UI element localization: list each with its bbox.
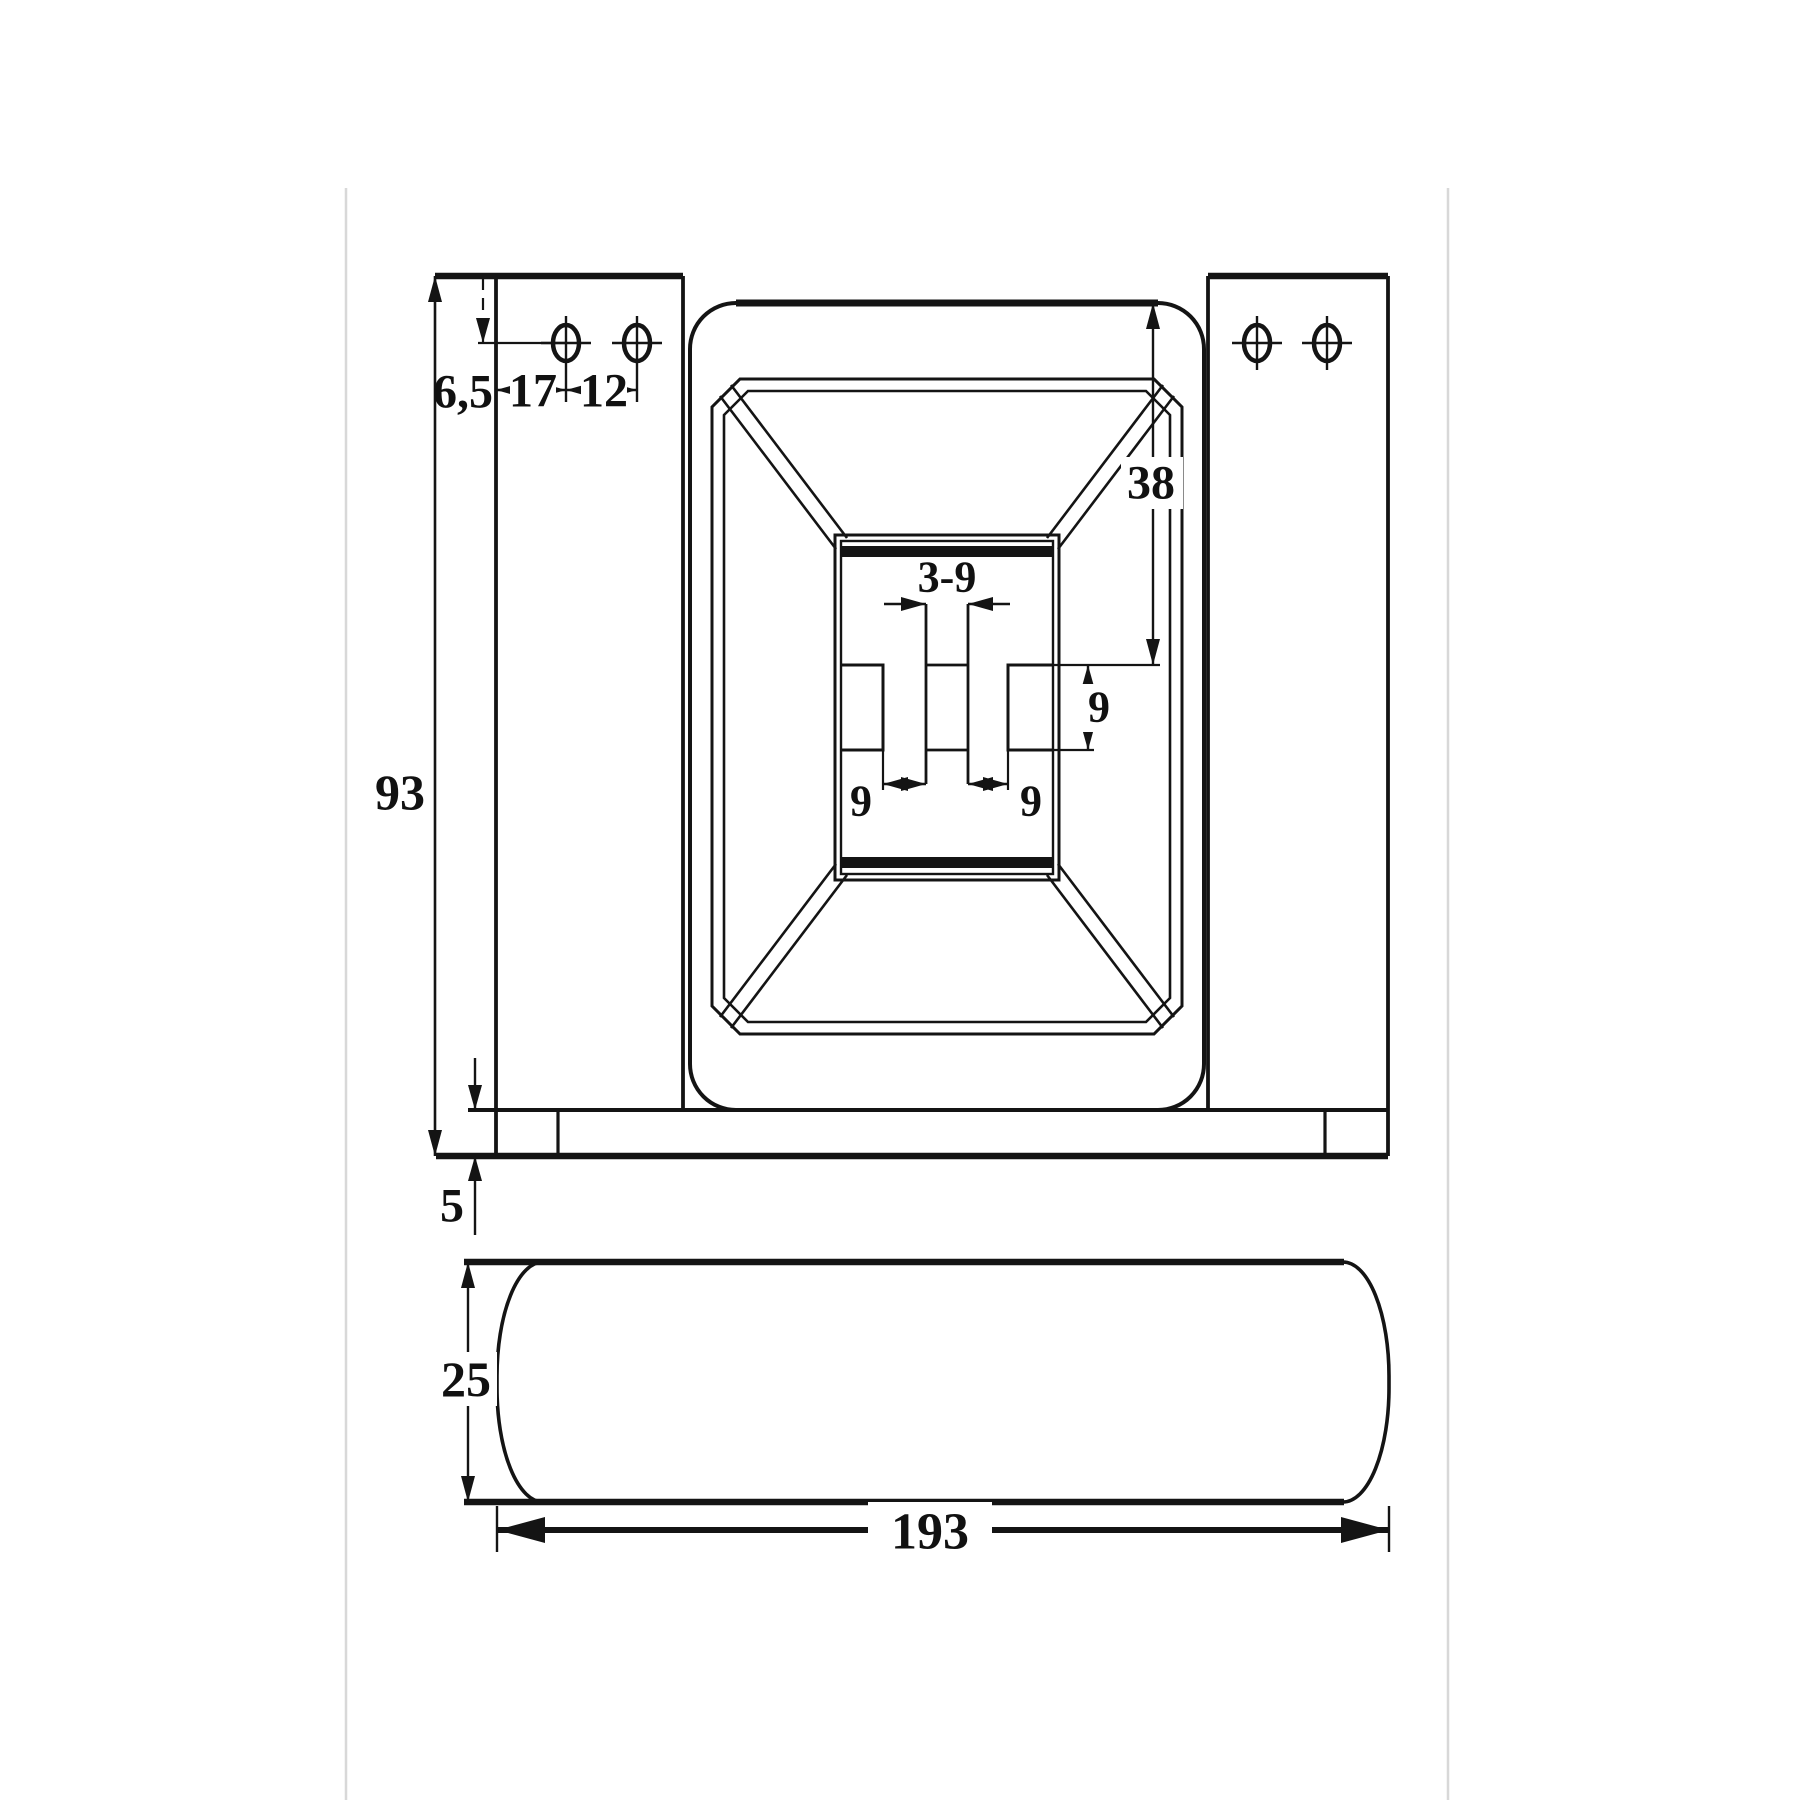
dimension-label: 9 bbox=[1020, 777, 1042, 826]
arrowhead bbox=[428, 1130, 442, 1156]
dim-slot-gap-right: 9 bbox=[968, 777, 1042, 826]
frustum-diagonal bbox=[1047, 875, 1163, 1028]
base-plate bbox=[436, 1110, 1388, 1156]
dimension-label: 5 bbox=[440, 1180, 464, 1233]
arrowhead bbox=[1146, 639, 1160, 665]
arrowhead bbox=[428, 276, 442, 302]
dimension-label: 3-9 bbox=[918, 553, 977, 602]
dimension-label: 9 bbox=[1088, 683, 1110, 732]
engineering-drawing-canvas: 93 6,5 17 12 38 bbox=[0, 0, 1800, 1800]
mounting-hole bbox=[1232, 316, 1282, 370]
dim-overall-height: 93 bbox=[375, 276, 442, 1156]
frustum-diagonal bbox=[720, 396, 836, 549]
recess-bottom-band bbox=[841, 857, 1053, 868]
bottom-view: 25 193 bbox=[437, 1262, 1389, 1561]
arrowhead bbox=[468, 1156, 482, 1181]
dimension-label: 193 bbox=[891, 1504, 969, 1561]
right-mounting-plate bbox=[1208, 276, 1388, 1156]
dimension-label: 93 bbox=[375, 764, 425, 820]
mounting-holes bbox=[541, 316, 1352, 402]
dim-slot-gap-left: 9 bbox=[850, 777, 926, 826]
left-notch bbox=[841, 665, 883, 750]
frustum-diagonal bbox=[720, 864, 836, 1017]
arrowhead bbox=[461, 1262, 475, 1288]
arrowhead bbox=[901, 777, 926, 791]
front-view: 93 6,5 17 12 38 bbox=[375, 276, 1388, 1235]
dimension-label: 17 bbox=[509, 365, 557, 418]
dimension-label: 25 bbox=[441, 1351, 491, 1407]
drawing-page: 93 6,5 17 12 38 bbox=[0, 0, 1800, 1800]
dim-recess-depth: 38 bbox=[1121, 303, 1183, 665]
central-body bbox=[690, 303, 1204, 1110]
frustum-diagonal bbox=[731, 875, 847, 1028]
arrowhead bbox=[468, 1085, 482, 1110]
dim-slot-spec: 3-9 bbox=[884, 553, 1010, 612]
arrowhead bbox=[1341, 1517, 1389, 1543]
mounting-hole bbox=[1302, 316, 1352, 370]
profile-outline bbox=[497, 1262, 1389, 1502]
dim-profile-thickness: 25 bbox=[437, 1262, 497, 1502]
arrowhead bbox=[1146, 303, 1160, 329]
dimension-label: 6,5 bbox=[433, 366, 493, 419]
dimension-label: 12 bbox=[580, 365, 628, 418]
dimension-label: 9 bbox=[850, 777, 872, 826]
frustum-diagonal bbox=[731, 385, 847, 538]
right-notch bbox=[1008, 665, 1052, 750]
dimension-label: 38 bbox=[1127, 457, 1175, 510]
dim-base-thickness: 5 bbox=[440, 1058, 482, 1235]
arrowhead bbox=[983, 777, 1008, 791]
body-outline bbox=[690, 303, 1204, 1110]
arrowhead bbox=[476, 318, 490, 343]
dim-overall-width: 193 bbox=[497, 1502, 1389, 1561]
frustum-diagonal bbox=[1058, 864, 1174, 1017]
arrowhead bbox=[497, 1517, 545, 1543]
arrowhead bbox=[461, 1476, 475, 1502]
dim-notch-height: 9 bbox=[1079, 665, 1119, 750]
